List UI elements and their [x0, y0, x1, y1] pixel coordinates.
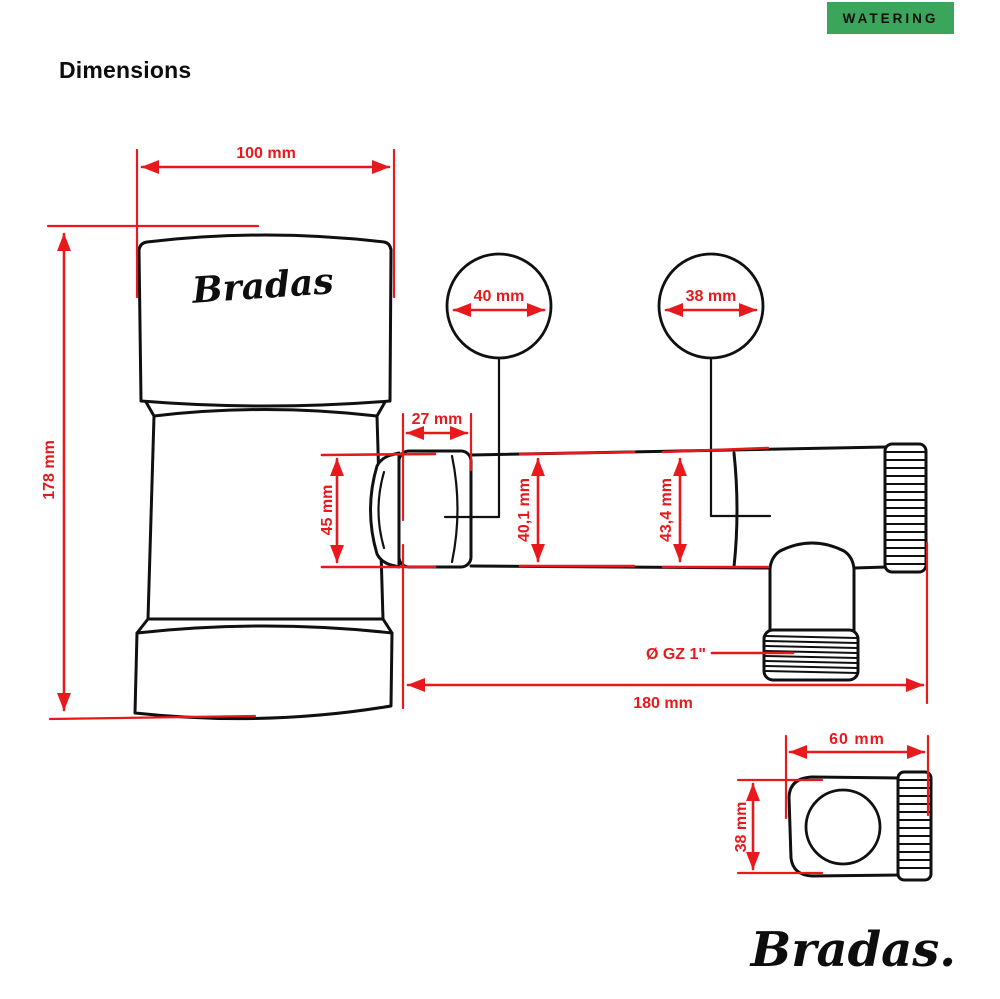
- dim-40mm-label: 40 mm: [474, 288, 525, 305]
- knob-callout-leader: [711, 358, 770, 516]
- collar: [371, 453, 400, 567]
- valve-body-left-arc: [734, 453, 737, 567]
- inlet-callout-circle: [447, 254, 551, 358]
- brand-logo: Bradas.: [749, 922, 956, 978]
- thread-size-label: Ø GZ 1": [646, 646, 706, 663]
- body-neck-chamfer-left: [146, 402, 154, 416]
- knob-front-ridges: [886, 452, 925, 564]
- body-middle: [148, 410, 383, 620]
- dim-38mm-label: 38 mm: [686, 288, 737, 305]
- connection-nut: [399, 451, 471, 567]
- dim-100mm-label: 100 mm: [236, 145, 296, 162]
- body-neck-chamfer-right: [377, 402, 385, 416]
- dim-38mm-side-label: 38 mm: [733, 802, 750, 853]
- dim-434mm-label: 43,4 mm: [658, 478, 675, 542]
- dimension-drawing: 100 mm 178 mm 40 mm 38 mm 27 mm 45 mm 40…: [0, 0, 1000, 999]
- product-dimensions-page: WATERING Dimensions: [0, 0, 1000, 999]
- body-skirt: [135, 626, 392, 719]
- outlet-dome: [770, 543, 854, 631]
- dim-180mm-label: 180 mm: [633, 695, 693, 712]
- knob-callout-circle: [659, 254, 763, 358]
- dim-401mm-label: 40,1 mm: [516, 478, 533, 542]
- valve-side-view: [789, 772, 931, 880]
- dim-45mm-label: 45 mm: [319, 485, 336, 536]
- body-cap: [139, 235, 391, 406]
- dim-60mm-label: 60 mm: [829, 731, 885, 748]
- dim-178mm-label: 178 mm: [41, 440, 58, 500]
- dim-27mm-label: 27 mm: [412, 411, 463, 428]
- pipe-bottom-edge-right: [854, 567, 887, 568]
